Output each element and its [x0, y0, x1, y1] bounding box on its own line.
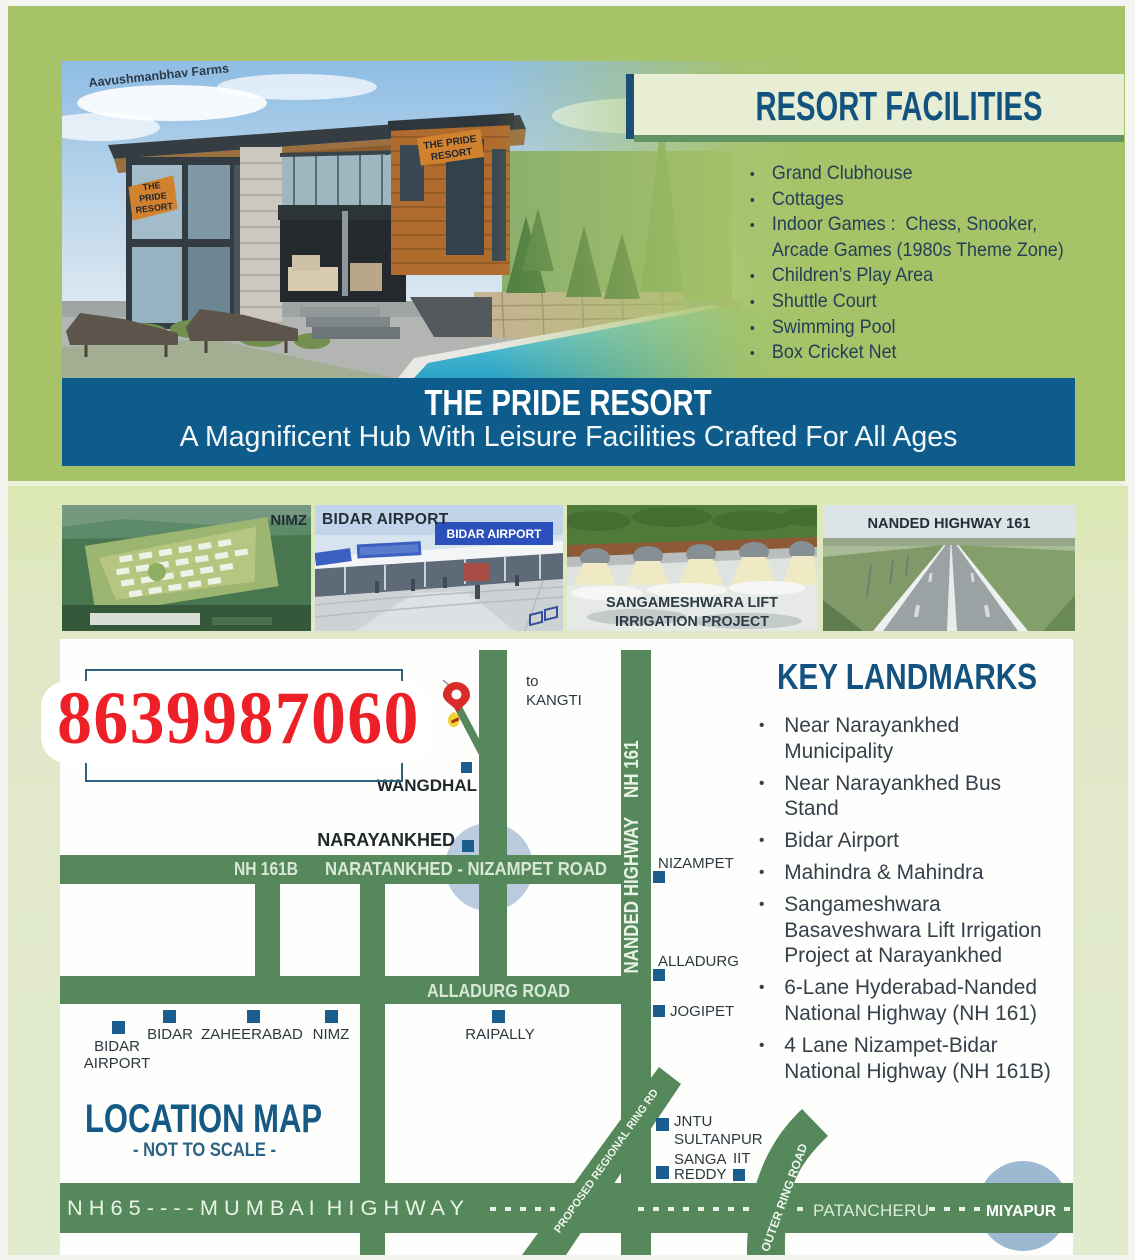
- svg-text:JNTU: JNTU: [674, 1113, 712, 1130]
- svg-text:RAIPALLY: RAIPALLY: [465, 1026, 534, 1043]
- svg-text:ZAHEERABAD: ZAHEERABAD: [201, 1026, 303, 1043]
- svg-text:KANGTI: KANGTI: [526, 692, 582, 709]
- svg-text:- NOT TO SCALE -: - NOT TO SCALE -: [133, 1140, 276, 1161]
- svg-text:RESORT FACILITIES: RESORT FACILITIES: [756, 83, 1043, 129]
- svg-text:JOGIPET: JOGIPET: [670, 1003, 734, 1020]
- svg-text:MIYAPUR: MIYAPUR: [986, 1203, 1056, 1220]
- svg-text:ALLADURG: ALLADURG: [658, 953, 739, 970]
- svg-text:PATANCHERU: PATANCHERU: [813, 1201, 929, 1220]
- svg-text:N H 6 5 - - - - M U M B A I H: N H 6 5 - - - - M U M B A I H I G H W A …: [67, 1197, 464, 1220]
- svg-text:NIMZ: NIMZ: [313, 1026, 350, 1043]
- svg-text:NIZAMPET: NIZAMPET: [658, 855, 734, 872]
- svg-text:NH 161B: NH 161B: [234, 858, 298, 879]
- svg-text:SULTANPUR: SULTANPUR: [674, 1131, 763, 1148]
- svg-text:NANDED HIGHWAY NH 161: NANDED HIGHWAY NH 161: [621, 741, 643, 974]
- svg-text:BIDAR AIRPORT: BIDAR AIRPORT: [447, 527, 543, 541]
- svg-text:ALLADURG ROAD: ALLADURG ROAD: [427, 981, 570, 1001]
- svg-text:BIDAR AIRPORT: BIDAR AIRPORT: [322, 511, 449, 528]
- svg-text:NANDED HIGHWAY 161: NANDED HIGHWAY 161: [868, 515, 1031, 532]
- svg-text:THE PRIDE RESORT: THE PRIDE RESORT: [425, 382, 712, 420]
- svg-text:REDDY: REDDY: [674, 1166, 727, 1183]
- svg-text:AIRPORT: AIRPORT: [84, 1055, 150, 1072]
- svg-text:KEY LANDMARKS: KEY LANDMARKS: [777, 656, 1037, 695]
- svg-text:NIMZ: NIMZ: [270, 512, 307, 529]
- svg-text:NARAYANKHED: NARAYANKHED: [317, 830, 455, 850]
- svg-text:SANGAMESHWARA LIFT: SANGAMESHWARA LIFT: [606, 594, 778, 611]
- svg-text:to: to: [526, 673, 539, 690]
- svg-text:LOCATION MAP: LOCATION MAP: [85, 1097, 322, 1141]
- svg-text:NARATANKHED - NIZAMPET ROAD: NARATANKHED - NIZAMPET ROAD: [325, 858, 607, 879]
- svg-text:IIT: IIT: [733, 1150, 751, 1167]
- svg-text:BIDAR: BIDAR: [147, 1026, 193, 1043]
- svg-text:BIDAR: BIDAR: [94, 1038, 140, 1055]
- svg-text:IRRIGATION PROJECT: IRRIGATION PROJECT: [615, 613, 769, 630]
